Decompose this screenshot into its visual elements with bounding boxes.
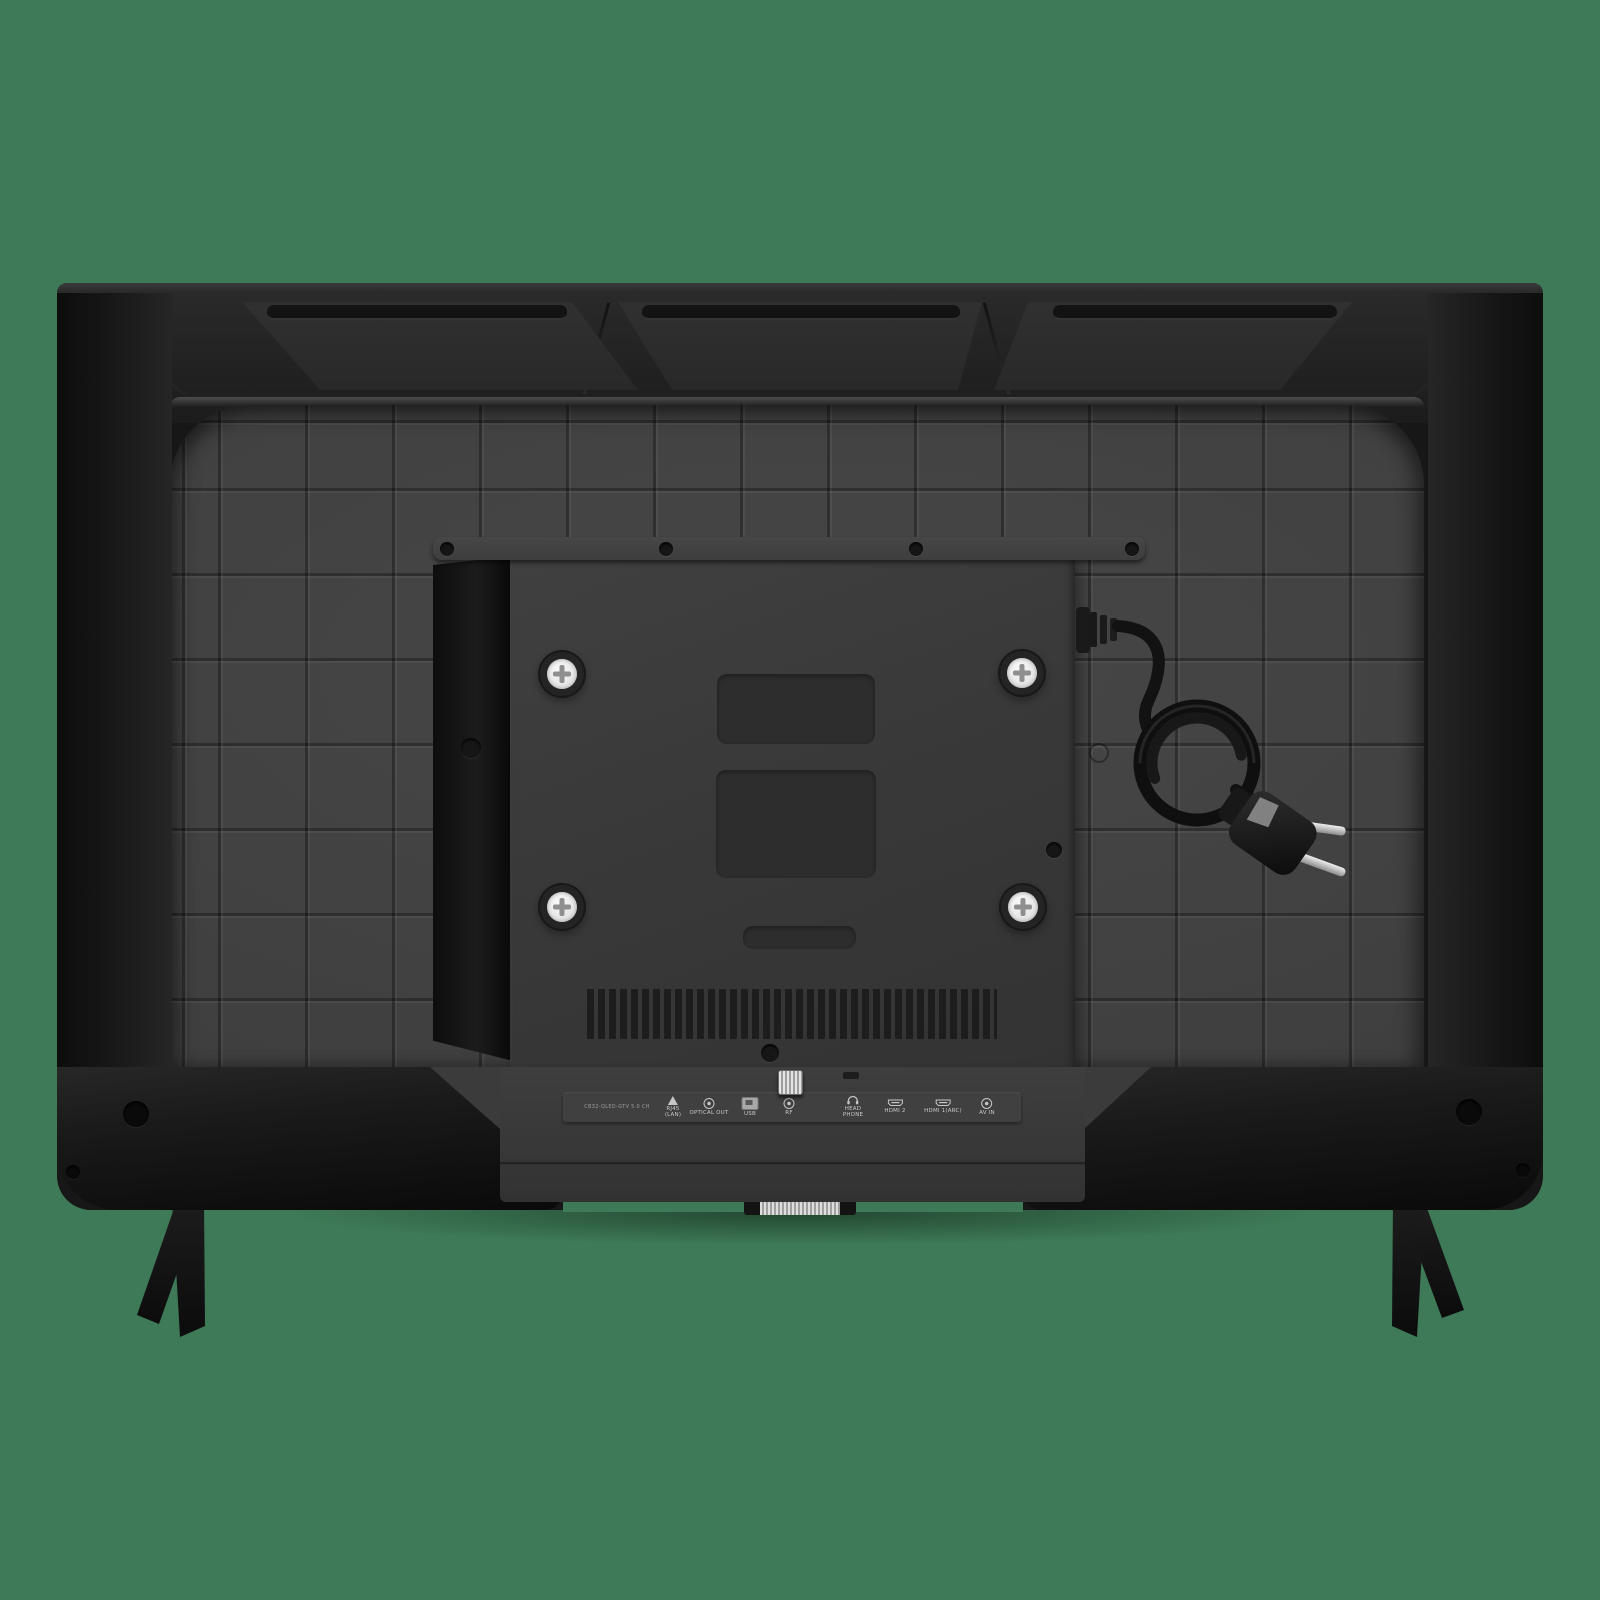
hdmi-icon — [887, 1099, 903, 1107]
port-rf: RF — [784, 1092, 795, 1122]
screw-cross — [1021, 898, 1026, 916]
optical-out-icon — [704, 1098, 715, 1109]
mini-connector-slot — [843, 1072, 859, 1079]
port-rj45-lan: RJ45 (LAN) — [665, 1092, 681, 1122]
vent-slot — [1053, 305, 1337, 320]
port-hdmi-1-arc: HDMI 1(ARC) — [924, 1092, 962, 1122]
vent-slot — [267, 305, 567, 320]
port-headphone: HEAD PHONE — [843, 1092, 863, 1122]
bracket-ribbed-metal — [760, 1202, 840, 1215]
side-bezel-left — [57, 293, 172, 1073]
flange-hole — [461, 738, 481, 758]
bracket-tab — [840, 1202, 856, 1215]
blank-label-recess — [716, 770, 876, 878]
rf-antenna-connector — [778, 1070, 803, 1095]
usb-icon — [742, 1097, 759, 1110]
power-plug — [1208, 775, 1322, 881]
bottom-center-seam — [500, 1162, 1085, 1165]
vent-slot — [642, 305, 960, 320]
side-bezel-right — [1428, 293, 1543, 1073]
rf-icon — [784, 1098, 795, 1109]
rail-hole — [659, 542, 673, 556]
port-optical-out: OPTICAL OUT — [690, 1092, 729, 1122]
speaker-vent-grille — [587, 989, 997, 1039]
bracket-tab — [744, 1202, 760, 1215]
lan-network-icon — [668, 1096, 678, 1105]
vesa-rail — [433, 537, 1145, 560]
power-cable — [1040, 560, 1400, 940]
stand-neck-bracket — [744, 1202, 856, 1215]
screw-cross — [560, 898, 565, 916]
hdmi-icon — [935, 1099, 951, 1107]
headphone-icon — [847, 1095, 859, 1105]
tv-back-panel: CB32-QLED-GTV 5.0 CH RJ45 (LAN) OPTICAL … — [57, 283, 1543, 1210]
cable-strain-relief — [1076, 607, 1090, 653]
blank-label-recess — [717, 674, 875, 744]
port-hdmi-2: HDMI 2 — [884, 1092, 905, 1122]
plate-flange — [433, 556, 513, 1061]
rail-hole — [440, 542, 454, 556]
vesa-screw — [547, 659, 577, 689]
pod-hole — [1516, 1163, 1530, 1177]
blank-label-recess — [743, 926, 856, 949]
vesa-screw — [547, 892, 577, 922]
port-av-in: AV IN — [979, 1092, 995, 1122]
screw-cross — [1020, 664, 1025, 682]
rail-hole — [909, 542, 923, 556]
vesa-screw — [1008, 892, 1038, 922]
av-in-icon — [981, 1098, 992, 1109]
pod-hole — [1456, 1099, 1482, 1125]
ports-label-strip: CB32-QLED-GTV 5.0 CH RJ45 (LAN) OPTICAL … — [563, 1092, 1021, 1122]
plate-hole — [761, 1044, 779, 1062]
mounting-plate — [510, 556, 1075, 1068]
rail-hole — [1125, 542, 1139, 556]
pod-hole — [66, 1165, 80, 1179]
scene: CB32-QLED-GTV 5.0 CH RJ45 (LAN) OPTICAL … — [0, 0, 1600, 1600]
port-usb: USB — [742, 1092, 759, 1122]
pod-hole — [123, 1101, 149, 1127]
vesa-screw — [1007, 658, 1037, 688]
model-code: CB32-QLED-GTV 5.0 CH — [584, 1092, 650, 1122]
screw-cross — [560, 665, 565, 683]
